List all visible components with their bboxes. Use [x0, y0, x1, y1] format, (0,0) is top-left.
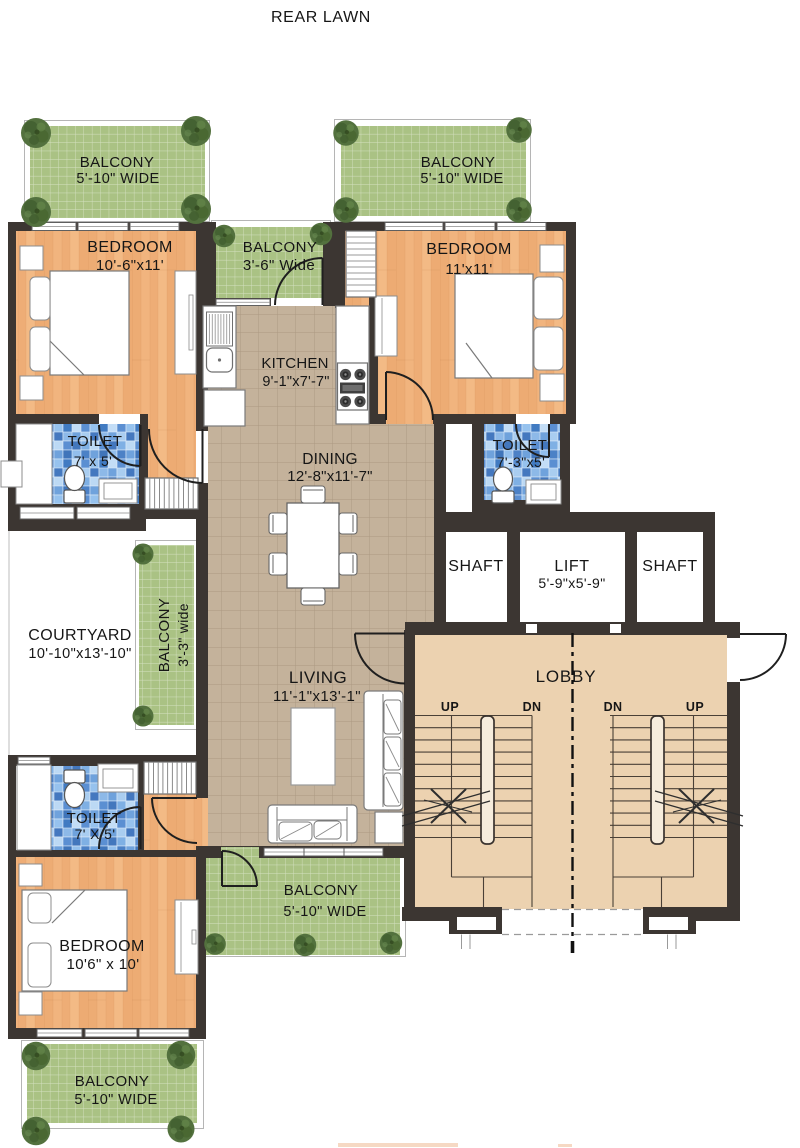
svg-text:DN: DN	[604, 700, 623, 714]
svg-text:5'-10" WIDE: 5'-10" WIDE	[76, 171, 159, 187]
svg-text:BEDROOM: BEDROOM	[87, 239, 172, 256]
svg-text:BALCONY: BALCONY	[284, 882, 359, 899]
svg-text:5'-10" WIDE: 5'-10" WIDE	[74, 1092, 157, 1108]
svg-text:10'6" x 10': 10'6" x 10'	[67, 956, 140, 973]
svg-text:BALCONY: BALCONY	[80, 154, 155, 171]
svg-text:3'-6" Wide: 3'-6" Wide	[243, 257, 315, 274]
svg-text:9'-1"x7'-7": 9'-1"x7'-7"	[262, 374, 329, 390]
svg-text:LIFT: LIFT	[554, 558, 589, 575]
svg-text:REAR LAWN: REAR LAWN	[271, 9, 371, 26]
svg-text:DN: DN	[523, 700, 542, 714]
svg-text:TOILET: TOILET	[68, 433, 123, 450]
svg-text:BALCONY: BALCONY	[75, 1073, 150, 1090]
svg-text:TOILET: TOILET	[493, 437, 548, 454]
svg-text:TOILET: TOILET	[67, 810, 122, 827]
svg-text:BALCONY: BALCONY	[156, 598, 173, 673]
svg-text:KITCHEN: KITCHEN	[261, 355, 328, 372]
svg-text:10'-6"x11': 10'-6"x11'	[96, 257, 164, 274]
svg-text:7' x 5': 7' x 5'	[74, 453, 113, 469]
svg-text:SHAFT: SHAFT	[642, 558, 697, 575]
svg-text:12'-8"x11'-7": 12'-8"x11'-7"	[287, 468, 372, 485]
svg-text:10'-10"x13'-10": 10'-10"x13'-10"	[28, 646, 131, 662]
svg-text:3'-3" wide: 3'-3" wide	[175, 603, 191, 667]
svg-text:UP: UP	[441, 700, 459, 714]
svg-text:BALCONY: BALCONY	[421, 154, 496, 171]
svg-text:SHAFT: SHAFT	[448, 558, 503, 575]
svg-text:11'x11': 11'x11'	[445, 261, 492, 278]
svg-text:BALCONY: BALCONY	[243, 239, 318, 256]
svg-text:UP: UP	[686, 700, 704, 714]
svg-text:5'-10" WIDE: 5'-10" WIDE	[283, 904, 366, 920]
svg-text:5'-9"x5'-9": 5'-9"x5'-9"	[538, 575, 605, 591]
svg-text:LIVING: LIVING	[289, 668, 347, 687]
svg-text:COURTYARD: COURTYARD	[28, 627, 131, 644]
svg-text:11'-1"x13'-1": 11'-1"x13'-1"	[273, 688, 361, 705]
svg-text:7'-3"x5': 7'-3"x5'	[497, 454, 546, 470]
svg-text:BEDROOM: BEDROOM	[426, 241, 511, 258]
svg-text:5'-10" WIDE: 5'-10" WIDE	[420, 171, 503, 187]
svg-text:LOBBY: LOBBY	[536, 667, 597, 686]
svg-text:7' X 5': 7' X 5'	[75, 826, 116, 842]
svg-text:BEDROOM: BEDROOM	[59, 938, 144, 955]
svg-text:DINING: DINING	[302, 451, 357, 468]
